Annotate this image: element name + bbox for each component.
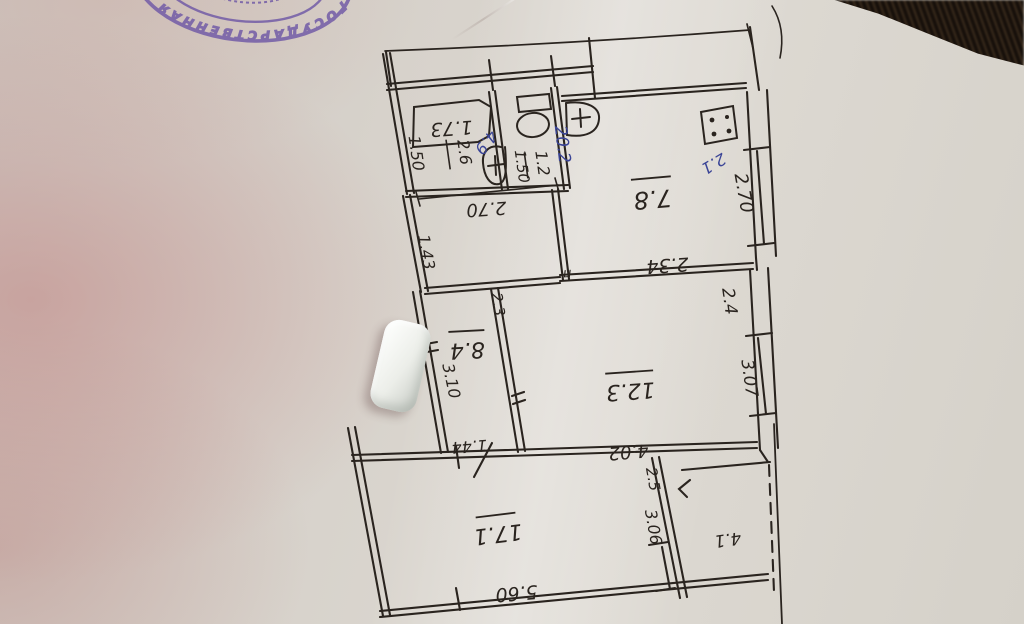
note-kitchen-area-blue: 2.1	[698, 149, 730, 178]
kitchen-window	[744, 147, 770, 150]
label-living-right-upper-dim: 2.4	[717, 287, 741, 317]
toilet-tank	[517, 94, 551, 112]
photographed-floor-plan: ГОСУДАРСТВЕННАЯ Р	[0, 0, 1024, 624]
balcony-railing-dashed	[769, 465, 774, 592]
balcony-door-mark	[679, 480, 690, 497]
label-bathtub-length: 1.73	[430, 116, 474, 141]
outer-right-line	[774, 424, 782, 624]
label-kitchen-bottom-dim: 2.34	[646, 253, 690, 278]
label-bedroom-left-dim: 3.10	[438, 361, 464, 400]
label-bathroom-width: 1.50	[405, 134, 429, 172]
label-kitchen-area: 7.8	[632, 183, 672, 214]
label-living-room-area: 12.3	[605, 376, 656, 404]
stamp: ГОСУДАРСТВЕННАЯ Р	[125, 0, 361, 55]
stove	[701, 106, 737, 144]
label-bedroom-top-dim: 2.3	[487, 291, 508, 317]
label-kitchen-right-dim: 2.70	[730, 171, 758, 214]
stamp-arc-text: ГОСУДАРСТВЕННАЯ Р	[132, 0, 352, 55]
blue-ink-notes: 4.9 20.2 2.1	[471, 124, 730, 178]
paper-pen-stroke	[772, 6, 782, 58]
note-total-area-blue: 20.2	[550, 124, 574, 164]
label-bathroom-area: 2.6	[453, 138, 475, 166]
living-room-window	[746, 333, 772, 336]
label-living-bottom-dim: 4.02	[608, 439, 650, 463]
toilet-bowl	[516, 111, 550, 138]
label-toilet-width: 1.50	[511, 149, 533, 185]
label-hallway-dim: 2.70	[466, 197, 507, 221]
label-left-upper-dim: 1.43	[414, 233, 439, 271]
door-symbol: п	[562, 266, 572, 282]
label-big-room-area: 17.1	[472, 518, 524, 549]
label-big-room-bottom-dim: 5.60	[494, 580, 538, 606]
label-bedroom-area: 8.4	[449, 336, 485, 363]
label-toilet-area: 1.2	[531, 149, 553, 177]
stamp-dashed-ring	[182, 0, 301, 9]
balcony-wall	[682, 462, 770, 470]
label-balcony-area: 4.1	[713, 527, 743, 551]
floor-plan-drawing: ГОСУДАРСТВЕННАЯ Р	[0, 0, 1024, 624]
label-living-right-dim: 3.07	[736, 358, 761, 398]
label-bedroom-bottom-dim: 1.44	[451, 436, 488, 457]
label-big-room-right-upper-dim: 2.5	[642, 466, 664, 493]
